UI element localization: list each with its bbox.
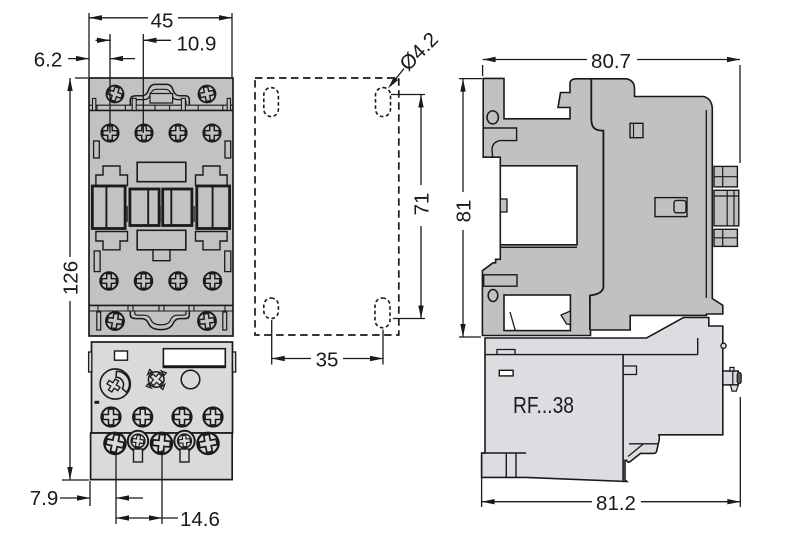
svg-text:14.6: 14.6 [180,508,220,531]
svg-text:81: 81 [453,200,476,223]
svg-text:6.2: 6.2 [34,49,63,72]
svg-text:7.9: 7.9 [30,487,59,510]
svg-text:81.2: 81.2 [596,492,636,515]
svg-text:45: 45 [151,10,174,33]
svg-text:35: 35 [316,349,339,372]
svg-text:80.7: 80.7 [591,50,631,73]
svg-text:10.9: 10.9 [177,33,217,56]
svg-text:126: 126 [60,261,83,295]
svg-text:71: 71 [411,193,434,216]
svg-text:RF...38: RF...38 [513,392,574,418]
svg-text:Ø4.2: Ø4.2 [395,28,443,76]
